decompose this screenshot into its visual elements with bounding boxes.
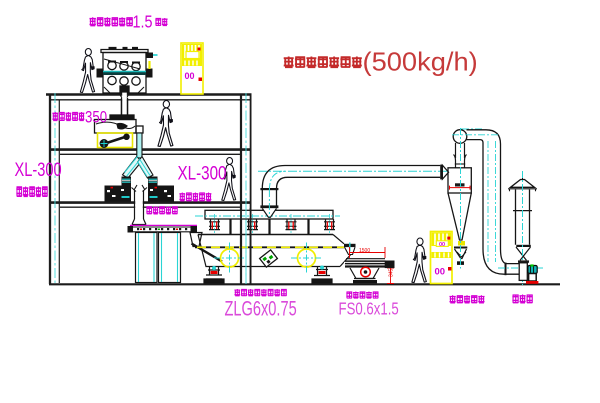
- svg-text:1.5: 1.5: [133, 12, 153, 32]
- svg-text:350: 350: [85, 108, 107, 127]
- svg-text:XL-300: XL-300: [15, 159, 62, 180]
- svg-text:1500: 1500: [359, 248, 370, 254]
- svg-text:345: 345: [389, 268, 395, 277]
- svg-text:ZLG6x0.75: ZLG6x0.75: [225, 297, 297, 320]
- svg-text:XL-300: XL-300: [178, 162, 227, 184]
- svg-text:FS0.6x1.5: FS0.6x1.5: [339, 300, 399, 319]
- svg-text:(500kg/h): (500kg/h): [363, 47, 478, 76]
- svg-text:00: 00: [185, 71, 195, 81]
- svg-text:00: 00: [439, 242, 445, 248]
- svg-text:00: 00: [435, 267, 446, 278]
